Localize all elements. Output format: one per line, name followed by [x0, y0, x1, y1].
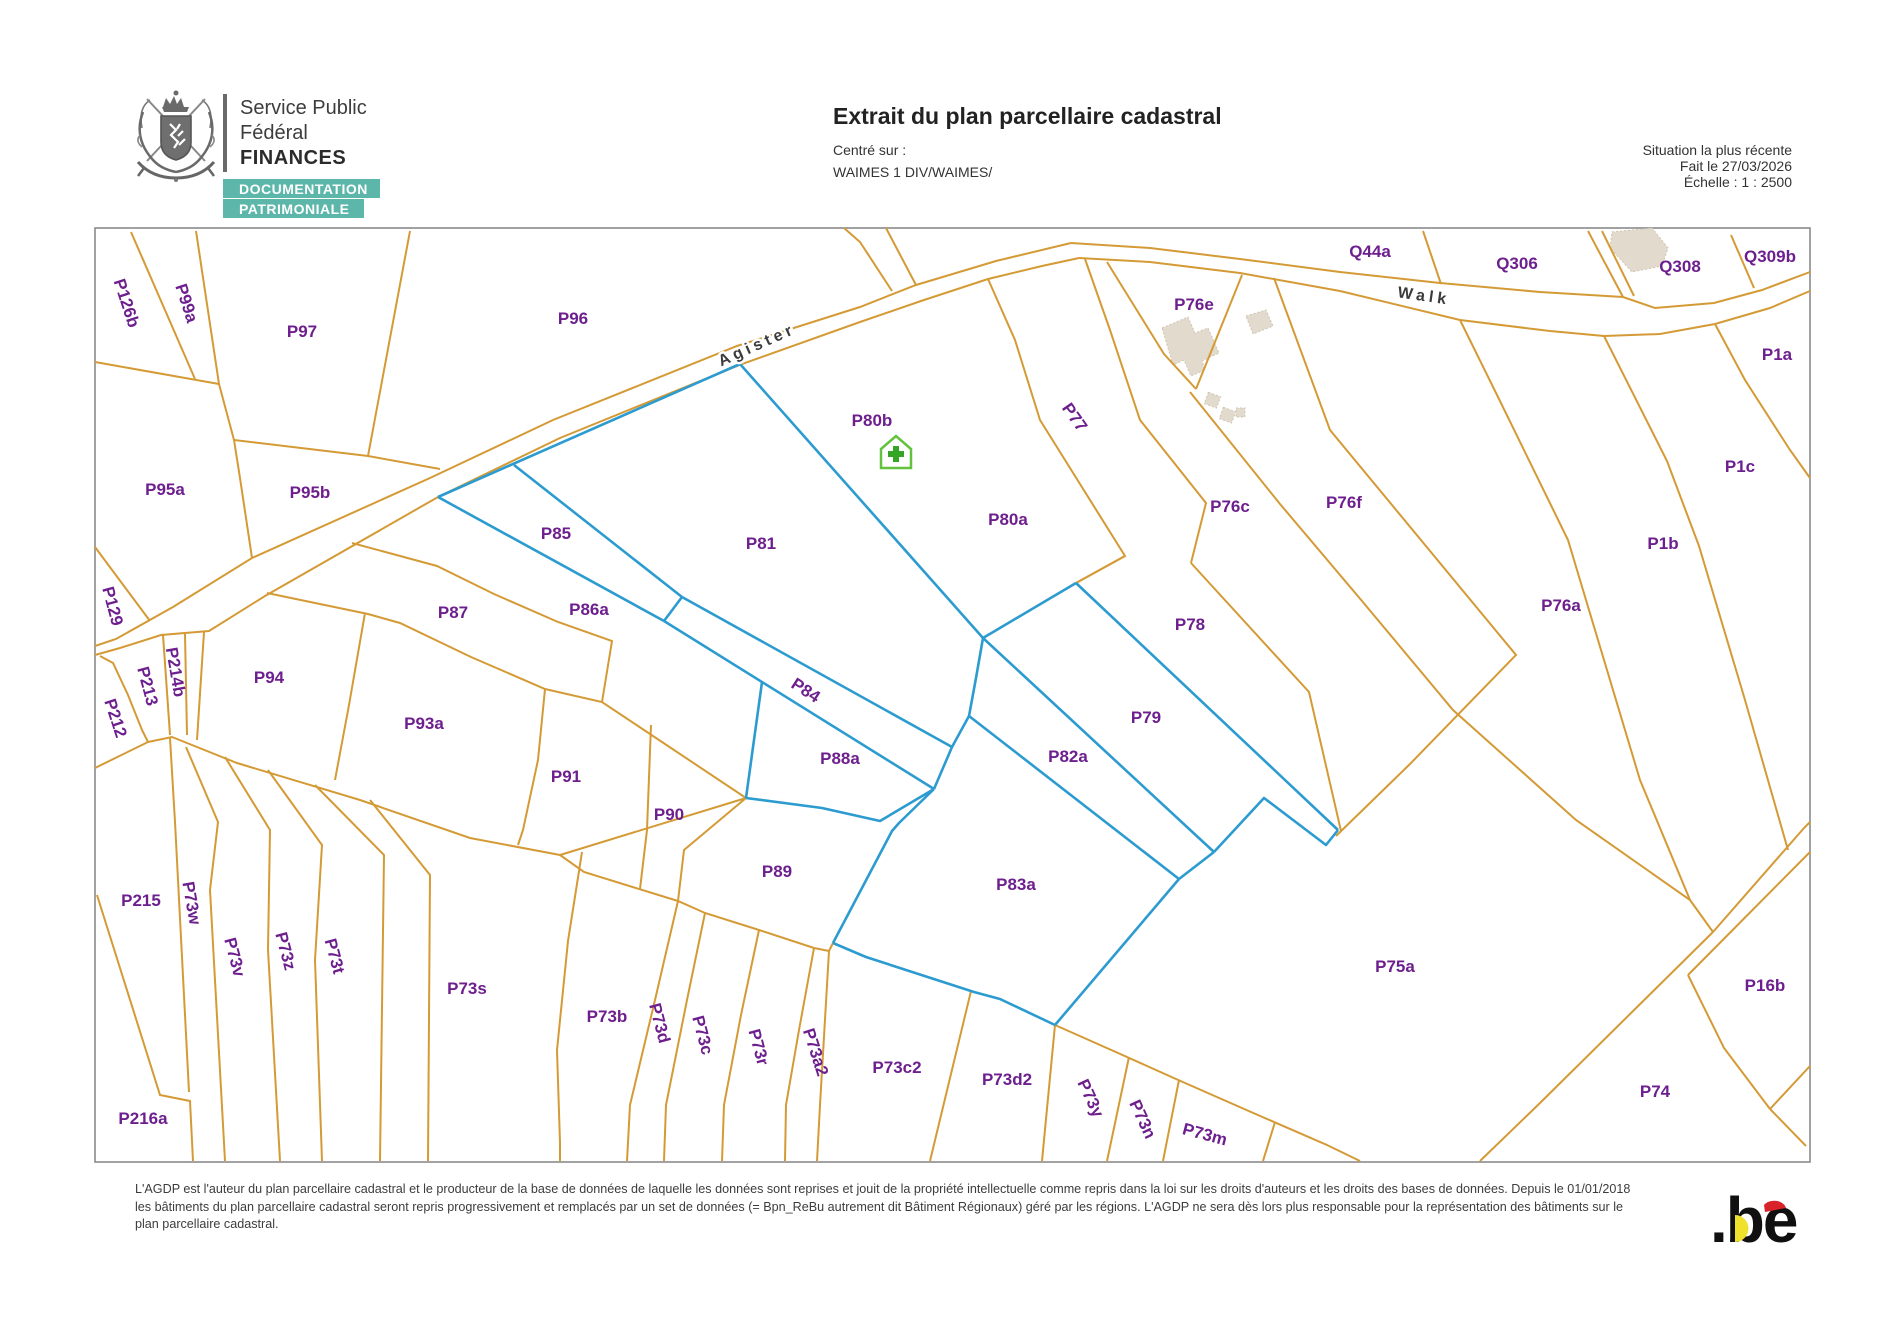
svg-text:Q308: Q308 [1659, 257, 1701, 276]
svg-text:P96: P96 [558, 309, 588, 328]
svg-text:P94: P94 [254, 668, 285, 687]
svg-text:P76a: P76a [1541, 596, 1581, 615]
svg-text:P83a: P83a [996, 875, 1036, 894]
svg-text:Q306: Q306 [1496, 254, 1538, 273]
svg-text:P76c: P76c [1210, 497, 1250, 516]
svg-text:P81: P81 [746, 534, 776, 553]
svg-text:P90: P90 [654, 805, 684, 824]
svg-text:P80b: P80b [852, 411, 893, 430]
svg-text:P80a: P80a [988, 510, 1028, 529]
svg-text:P16b: P16b [1745, 976, 1786, 995]
svg-text:P73a2: P73a2 [799, 1026, 832, 1079]
svg-text:P129: P129 [98, 584, 127, 627]
svg-text:P73y: P73y [1074, 1076, 1108, 1121]
svg-text:P77: P77 [1058, 399, 1091, 435]
svg-text:Walk: Walk [1397, 284, 1452, 308]
svg-text:P73r: P73r [745, 1027, 773, 1068]
svg-text:P76f: P76f [1326, 493, 1362, 512]
svg-text:P86a: P86a [569, 600, 609, 619]
svg-text:P73d2: P73d2 [982, 1070, 1032, 1089]
svg-text:P75a: P75a [1375, 957, 1415, 976]
svg-text:P73n: P73n [1125, 1097, 1159, 1142]
svg-text:P79: P79 [1131, 708, 1161, 727]
svg-text:P82a: P82a [1048, 747, 1088, 766]
svg-text:P91: P91 [551, 767, 581, 786]
svg-text:Q309b: Q309b [1744, 247, 1796, 266]
svg-text:P95a: P95a [145, 480, 185, 499]
svg-text:P215: P215 [121, 891, 161, 910]
svg-text:P95b: P95b [290, 483, 331, 502]
svg-text:P97: P97 [287, 322, 317, 341]
svg-text:P85: P85 [541, 524, 571, 543]
svg-text:P73s: P73s [447, 979, 487, 998]
svg-text:P213: P213 [133, 664, 162, 707]
svg-text:P73c: P73c [688, 1013, 717, 1056]
svg-text:P99a: P99a [171, 281, 202, 325]
svg-text:P76e: P76e [1174, 295, 1214, 314]
svg-text:P126b: P126b [110, 276, 144, 330]
svg-text:Agister: Agister [716, 321, 799, 370]
svg-text:Q44a: Q44a [1349, 242, 1391, 261]
svg-text:P212: P212 [100, 696, 130, 740]
svg-text:P73b: P73b [587, 1007, 628, 1026]
svg-text:P73v: P73v [220, 935, 249, 979]
svg-text:P73m: P73m [1180, 1119, 1229, 1149]
svg-text:P1b: P1b [1647, 534, 1678, 553]
svg-text:P73z: P73z [271, 930, 299, 972]
svg-text:P73w: P73w [178, 880, 204, 927]
svg-text:P216a: P216a [118, 1109, 168, 1128]
svg-text:P74: P74 [1640, 1082, 1671, 1101]
svg-text:P88a: P88a [820, 749, 860, 768]
svg-text:P1c: P1c [1725, 457, 1755, 476]
svg-text:P87: P87 [438, 603, 468, 622]
svg-text:P78: P78 [1175, 615, 1205, 634]
svg-text:P73t: P73t [321, 936, 349, 976]
svg-text:P73c2: P73c2 [872, 1058, 921, 1077]
svg-text:P93a: P93a [404, 714, 444, 733]
svg-text:P89: P89 [762, 862, 792, 881]
svg-text:P1a: P1a [1762, 345, 1793, 364]
